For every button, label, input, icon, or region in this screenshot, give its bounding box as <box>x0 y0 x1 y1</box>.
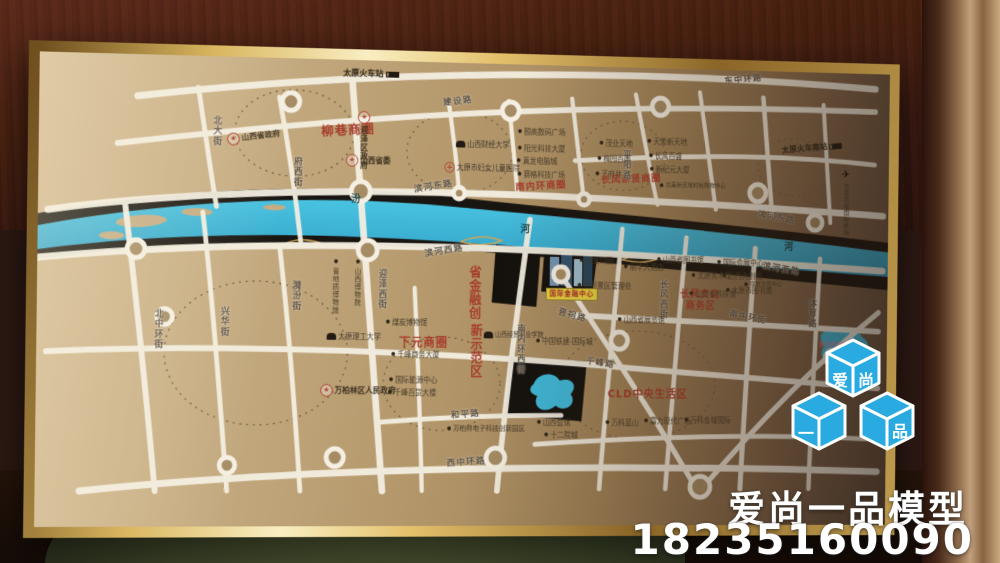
label-text: 千峰百货大楼 <box>394 389 437 397</box>
label-text: 丽华大酒店 <box>630 264 664 272</box>
cube-char-ai: 爱 <box>832 371 848 390</box>
road-label: 千峰路 <box>585 358 615 371</box>
label-text: 省金融创 <box>467 265 480 320</box>
label-text: 南中环街 <box>729 310 768 326</box>
label-text: 南内环商圈 <box>515 181 567 193</box>
label-text: 太原理工大学 <box>338 333 381 341</box>
map-board: 太原火车站东中环路建设路北大街府西街柳巷商圈★迎泽区政府★山西省政府★山西省委山… <box>23 40 900 538</box>
district-label: 下元商圈 <box>399 337 448 349</box>
poi-dot-icon: ● <box>595 172 599 177</box>
university-icon <box>327 333 337 340</box>
label-text: 河 <box>784 243 793 253</box>
label-text: 太原火车南站 <box>782 143 828 155</box>
road-label: 北大街 <box>211 115 220 146</box>
label-text: 阳光科技大厦 <box>524 145 566 153</box>
cube-char-shang: 尚 <box>858 371 874 390</box>
cube-char-yi: 一 <box>798 424 814 443</box>
poi-dot-icon: ● <box>691 273 695 278</box>
map-label: ●长风百盛 <box>649 153 682 161</box>
road-label: 北中环街 <box>152 308 161 350</box>
star-icon: ★ <box>346 154 359 167</box>
poi-dot-icon: ● <box>618 318 622 323</box>
map-label: ●中国铁建·国际城 <box>536 338 593 346</box>
label-text: 太原市图书馆 <box>732 287 773 295</box>
road-label: 府西街 <box>292 157 301 188</box>
aishang-cube-logo-icon: 爱 尚 一 品 <box>778 326 928 471</box>
label-text: 太原市妇女儿童医院 <box>457 164 520 173</box>
cube-char-pin: 品 <box>892 422 908 441</box>
road-label: 滨河西路 <box>762 263 801 278</box>
map-label: ●太原市图书馆 <box>726 287 773 295</box>
poi-dot-icon: ● <box>649 154 653 159</box>
poi-dot-icon: ● <box>518 146 522 151</box>
road-label: 晋祠路 <box>557 308 587 324</box>
map-label: ●山西博物院 <box>354 259 361 307</box>
road-label: 平阳路 <box>621 150 630 180</box>
project-tag: 国际金融中心 <box>546 288 598 301</box>
map-label: ●山西省图书馆 <box>657 256 704 264</box>
map-label: 河 <box>520 225 529 235</box>
poi-dot-icon: ● <box>597 157 601 162</box>
label-text: 天龙公园 <box>585 257 613 265</box>
label-text: 山西会馆 <box>543 419 571 426</box>
label-text: 千峰路 <box>585 358 615 371</box>
label-text: 万科蓝山 <box>611 419 639 426</box>
label-text: 晋祠路 <box>557 308 587 324</box>
showroom-photo: 太原火车站东中环路建设路北大街府西街柳巷商圈★迎泽区政府★山西省政府★山西省委山… <box>0 0 1000 563</box>
district-label: 南内环商圈 <box>515 181 567 193</box>
map-label: ●国际会展中心 <box>717 259 764 267</box>
label-text: 山西大剧院 <box>728 273 762 281</box>
poi-dot-icon: ● <box>657 258 661 263</box>
map-label: ●煤炭博物馆 <box>386 319 428 327</box>
star-icon: ★ <box>358 111 371 124</box>
map-label: 河 <box>784 243 793 253</box>
label-text: 千峰商务大厦 <box>397 351 440 359</box>
label-text: 滨河西路 <box>762 263 801 278</box>
poi-dot-icon: ● <box>599 141 603 146</box>
road-label: 长风西街 <box>658 279 667 319</box>
map-label: ●国际能源中心 <box>389 377 438 385</box>
map-label: +太原市妇女儿童医院 <box>444 162 520 174</box>
road-label: 体育路 <box>807 299 815 329</box>
road-label: 南内环西街 <box>515 324 524 375</box>
poi-dot-icon: ● <box>726 288 730 293</box>
label-text: 滨河西路 <box>424 244 464 259</box>
road-label: 迎泽西街 <box>376 269 385 310</box>
government-label: ★山西省政府 <box>226 127 280 146</box>
phone-number: 18235160090 <box>631 515 974 563</box>
poi-dot-icon: ● <box>388 390 392 395</box>
label-text: 山西省展览馆 <box>623 317 664 325</box>
label-text: 体育路 <box>807 299 815 329</box>
label-text: 十二院城 <box>550 432 578 439</box>
label-text: 万科金域国际 <box>690 417 731 424</box>
poi-dot-icon: ● <box>580 258 584 263</box>
map-label: ●千峰百货大楼 <box>388 389 437 397</box>
label-text: 国际能源中心 <box>395 377 438 385</box>
poi-dot-icon: ● <box>518 130 522 135</box>
label-text: 滨河东路 <box>414 180 454 195</box>
label-text: 北中环街 <box>152 308 161 350</box>
star-icon: ★ <box>226 132 240 146</box>
label-text: 山西博物院 <box>354 268 361 307</box>
train-icon <box>385 72 398 78</box>
map-label: ●茂业天地 <box>599 140 633 148</box>
label-text: 滨河东路 <box>757 211 796 226</box>
university-icon <box>456 141 465 148</box>
label-text: 国际会展中心 <box>723 259 764 267</box>
label-text: 真龙电脑城 <box>523 158 558 166</box>
road-label: 和平路 <box>451 410 481 421</box>
poi-dot-icon: ● <box>717 260 721 265</box>
label-text: 山西省委 <box>360 157 390 165</box>
map-label: ●万科蓝山 <box>605 419 639 426</box>
government-label: ★万柏林区人民政府 <box>320 384 395 397</box>
poi-dot-icon: ● <box>644 419 648 424</box>
label-text: 万柏林区人民政府 <box>335 386 396 394</box>
map-label: ●山西会馆 <box>537 419 571 426</box>
label-text: 茂业天地 <box>605 140 633 148</box>
map-label: ●万科金域国际 <box>684 417 731 424</box>
poi-dot-icon: ● <box>647 139 651 144</box>
label-text: 新示范区 <box>468 324 481 379</box>
label-text: 府西街 <box>292 157 301 188</box>
label-text: 平阳路 <box>621 150 630 180</box>
label-text: 长风西街 <box>658 279 667 319</box>
poi-dot-icon: ● <box>536 339 540 344</box>
poi-dot-icon: ● <box>624 265 628 270</box>
label-text: 省地质博物馆 <box>332 267 339 314</box>
road-label: 南中环街 <box>729 310 768 326</box>
poi-dot-icon: ● <box>650 167 654 172</box>
label-text: 天美新天地 <box>653 138 687 146</box>
star-icon: ★ <box>320 384 333 397</box>
label-text: 赛格科技广场 <box>523 171 565 179</box>
poi-dot-icon: ● <box>544 433 548 438</box>
road-label: 东中环路 <box>724 74 763 86</box>
poi-dot-icon: ● <box>684 418 688 423</box>
label-text: 下元商圈 <box>399 337 448 349</box>
district-label: 省金融创 <box>467 265 480 320</box>
label-text: 建设路 <box>443 96 473 108</box>
poi-dot-icon: ● <box>605 421 609 426</box>
road-label: 滨河东路 <box>757 211 796 226</box>
label-text: 长风亲贤商圈 <box>601 174 662 186</box>
label-text: 万柏林电子科技创新园区 <box>453 426 525 433</box>
map-label: ●千峰商务大厦 <box>391 351 440 359</box>
label-text: 山西省图书馆 <box>663 257 704 265</box>
poi-dot-icon: ● <box>391 352 395 357</box>
road-label: 滨河东路 <box>414 180 454 195</box>
government-label: ★山西省委 <box>346 154 391 168</box>
label-text: 长风百盛 <box>655 153 683 161</box>
map-label: 汾 <box>351 195 361 205</box>
label-text: 国际金融中心 <box>549 291 594 298</box>
district-label: 长风亲贤商圈 <box>601 174 662 186</box>
map-label: ●十二院城 <box>544 432 578 439</box>
label-text: 商务区 <box>686 302 716 312</box>
poi-dot-icon: ● <box>722 274 726 279</box>
map-label: ●万柏林电子科技创新园区 <box>447 426 525 433</box>
label-text: 中国铁建·国际城 <box>542 338 593 346</box>
label-text: 山西省政府 <box>241 129 280 141</box>
poi-dot-icon: ● <box>517 159 521 164</box>
map-label: 山西经贸职业学院 <box>484 332 544 339</box>
map-label: ●省地质博物馆 <box>332 258 339 314</box>
map-label: ●山西大剧院 <box>722 273 762 281</box>
map-label: ●天美新天地 <box>647 138 687 146</box>
map-label: 太原火车南站 <box>782 142 843 155</box>
map-label: ●颐高数码广场 <box>518 128 566 136</box>
map-label: ●真龙电脑城 <box>517 157 558 165</box>
label-text: 西中环路 <box>446 457 486 469</box>
district-label: 商务区 <box>686 302 716 312</box>
poi-dot-icon: ● <box>447 427 451 432</box>
district-label: CLD中央生活区 <box>608 389 688 400</box>
district-label: 新示范区 <box>468 324 481 379</box>
label-text: 太原火车站 <box>343 69 384 78</box>
train-icon <box>829 143 842 150</box>
label-text: 东中环路 <box>724 74 763 86</box>
poi-dot-icon: ● <box>389 378 393 383</box>
label-text: 北大街 <box>211 115 220 146</box>
poi-dot-icon: ● <box>689 292 693 297</box>
poi-dot-icon: ● <box>355 259 360 266</box>
map-label: 山西财经大学 <box>456 141 509 149</box>
airplane-icon: ✈ <box>841 168 851 181</box>
label-text: 煤炭博物馆 <box>392 319 428 327</box>
label-text: 南内环西街 <box>515 324 524 375</box>
map-label: ●赛格科技广场 <box>517 171 565 179</box>
poi-dot-icon: ● <box>537 420 541 425</box>
map-label: 太原理工大学 <box>327 333 381 341</box>
label-text: 汾 <box>351 195 361 205</box>
poi-dot-icon: ● <box>333 258 338 265</box>
map-labels: 太原火车站东中环路建设路北大街府西街柳巷商圈★迎泽区政府★山西省政府★山西省委山… <box>34 51 890 527</box>
label-text: 和平路 <box>451 410 481 421</box>
map-label: 太原火车站 <box>343 69 399 79</box>
map-label: ●山西省展览馆 <box>618 316 665 324</box>
road-label: 滨河西路 <box>424 244 464 259</box>
label-text: 兴华街 <box>219 306 228 337</box>
hospital-cross-icon: + <box>444 162 454 173</box>
label-text: 太原武宿国际机场 <box>842 183 848 236</box>
map-label: ●丽华大酒店 <box>624 264 664 272</box>
label-text: 迎泽西街 <box>376 269 385 310</box>
poi-dot-icon: ● <box>517 172 521 177</box>
road-label: 兴华街 <box>219 306 228 337</box>
label-text: 山西财经大学 <box>467 141 509 149</box>
map-label: ●阳光科技大厦 <box>518 145 566 153</box>
label-text: 颐高数码广场 <box>524 129 566 137</box>
label-text: 北美新天地时尚购物中心 <box>665 183 725 190</box>
poi-dot-icon: ● <box>386 320 390 325</box>
map-label: ●天龙公园 <box>580 257 614 265</box>
label-text: CLD中央生活区 <box>608 389 688 400</box>
road-label: 漪汾街 <box>290 280 299 311</box>
road-label: 西中环路 <box>446 457 486 469</box>
map-label: ✈太原武宿国际机场 <box>840 168 851 236</box>
label-text: 河 <box>520 225 529 235</box>
road-label: 建设路 <box>443 96 473 108</box>
university-icon <box>484 332 493 339</box>
label-text: 漪汾街 <box>290 280 299 311</box>
map-label: ●北美新天地时尚购物中心 <box>660 183 726 190</box>
